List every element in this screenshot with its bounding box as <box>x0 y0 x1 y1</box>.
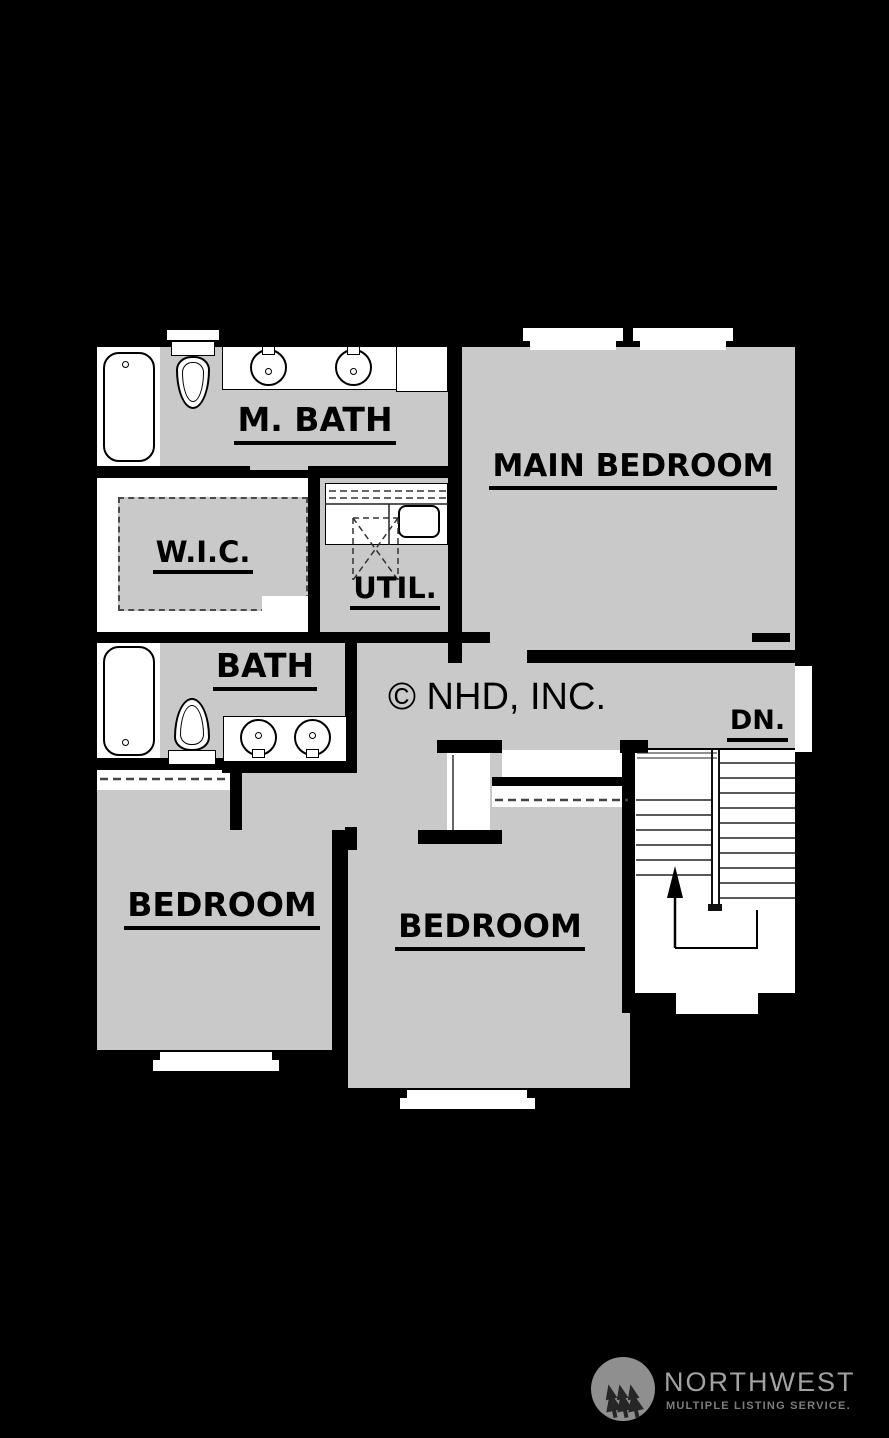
stair-label-dn: DN. <box>720 707 795 742</box>
wall <box>492 777 632 786</box>
wic-door-opening <box>262 596 308 633</box>
wall <box>418 830 502 844</box>
bathtub-icon <box>103 352 155 462</box>
sink-drain-icon <box>350 368 357 375</box>
wall <box>308 478 320 632</box>
three-trees-icon <box>591 1357 655 1421</box>
wall <box>88 340 97 1062</box>
wall <box>345 827 357 850</box>
window-stair-south <box>676 988 758 1014</box>
wall <box>622 740 635 1013</box>
hall-closet-shelf <box>502 750 630 777</box>
room-label-wic: W.I.C. <box>138 537 268 574</box>
room-label-text: BEDROOM <box>395 910 585 951</box>
room-label-bedroom-center: BEDROOM <box>382 910 598 951</box>
window-main-bedroom-1-frame <box>530 339 616 350</box>
bedroom-center-closet <box>492 786 630 807</box>
wall <box>437 740 502 753</box>
toilet-tank <box>168 750 216 765</box>
room-label-text: UTIL. <box>350 573 440 610</box>
sink-drain-icon <box>309 732 316 739</box>
room-label-bedroom-left: BEDROOM <box>112 888 332 930</box>
wall <box>442 632 490 643</box>
wall <box>88 466 250 478</box>
mls-logo-subtitle: MULTIPLE LISTING SERVICE. <box>666 1400 851 1412</box>
copyright-text: © NHD, INC. <box>362 678 632 718</box>
mls-logo-badge <box>591 1357 655 1421</box>
faucet-icon <box>306 749 319 758</box>
wall <box>460 340 807 347</box>
toilet-tank <box>171 341 215 356</box>
sink-drain-icon <box>265 368 272 375</box>
room-floor-main-bedroom <box>460 347 795 650</box>
vanity-cabinet <box>396 346 448 392</box>
room-label-m-bath: M. BATH <box>225 403 405 445</box>
faucet-icon <box>262 346 275 355</box>
linen-closet <box>447 753 490 832</box>
mls-logo-title: NORTHWEST <box>664 1367 856 1398</box>
sink-drain-icon <box>255 732 262 739</box>
room-label-text: BEDROOM <box>124 888 319 930</box>
bedroom-left-entry-floor <box>242 768 345 830</box>
laundry-sink-icon <box>398 505 440 538</box>
room-label-text: MAIN BEDROOM <box>489 450 776 490</box>
wall <box>230 758 242 830</box>
wall <box>448 342 462 663</box>
faucet-icon <box>347 346 360 355</box>
floor-plan-page: M. BATH MAIN BEDROOM W.I.C. UTIL. BATH D… <box>0 0 889 1438</box>
wall <box>620 740 648 753</box>
stairwell <box>635 748 795 993</box>
tub-drain-icon <box>122 739 129 746</box>
bedroom-left-closet <box>97 768 230 790</box>
room-label-text: DN. <box>727 707 788 742</box>
window-bedroom-center-sill <box>400 1098 535 1109</box>
room-label-main-bedroom: MAIN BEDROOM <box>483 450 783 490</box>
faucet-icon <box>252 749 265 758</box>
wall <box>308 466 460 478</box>
wall <box>752 633 790 642</box>
tub-drain-icon <box>122 361 129 368</box>
room-label-bath: BATH <box>192 649 338 691</box>
wall <box>527 650 795 663</box>
window-main-bedroom-2-frame <box>640 339 726 350</box>
wall <box>88 632 318 643</box>
room-label-text: M. BATH <box>234 403 395 445</box>
toilet-icon <box>166 329 220 341</box>
room-label-text: W.I.C. <box>153 537 254 574</box>
window-bedroom-left-sill <box>153 1060 279 1071</box>
room-label-text: BATH <box>213 649 317 691</box>
room-label-util: UTIL. <box>325 573 465 610</box>
wall <box>332 850 348 1055</box>
wall <box>318 632 387 643</box>
bathtub-icon <box>103 646 155 756</box>
window-stair-east <box>795 666 812 752</box>
